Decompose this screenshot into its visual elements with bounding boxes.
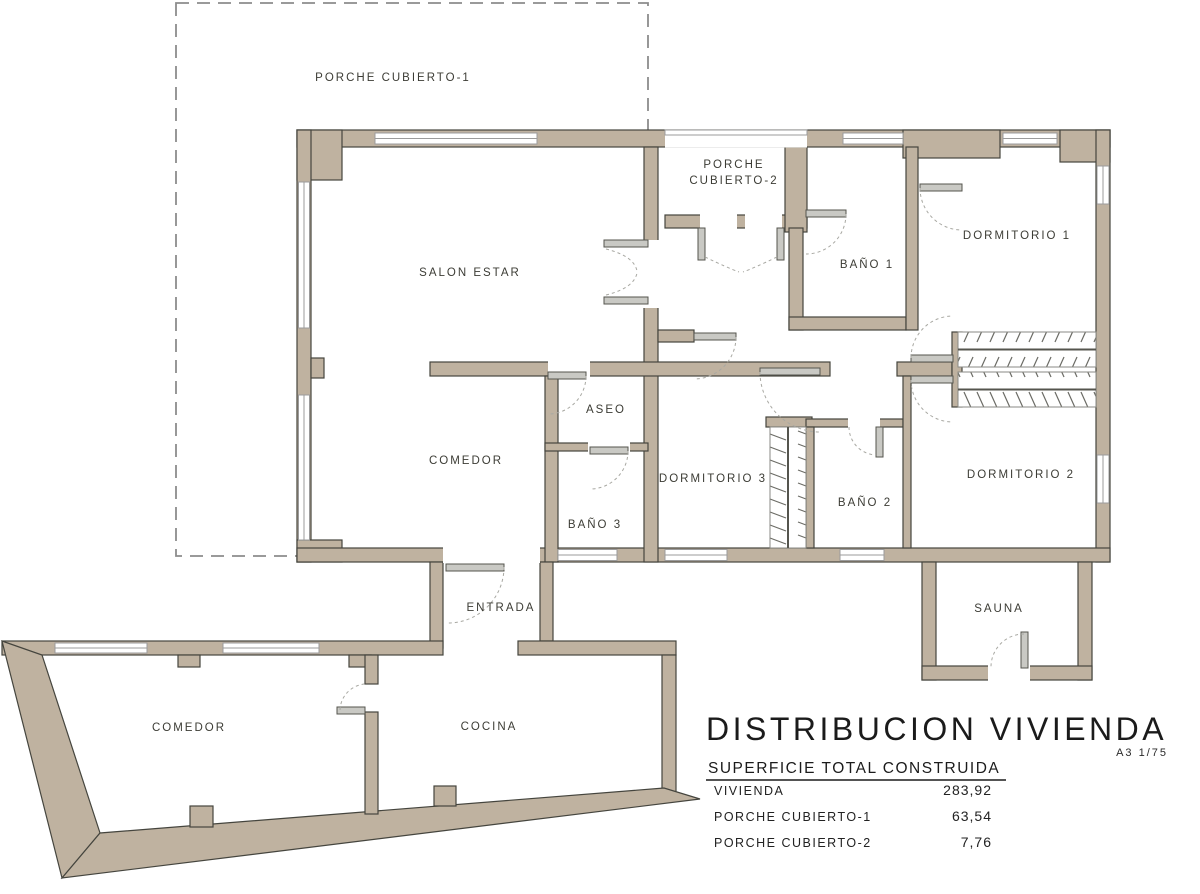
table-row-value: 283,92	[943, 782, 992, 798]
label-salon-estar: SALON ESTAR	[419, 267, 521, 279]
room-labels: PORCHE CUBIERTO-1 PORCHE CUBIERTO-2 SALO…	[152, 72, 1075, 734]
drawing-title: DISTRIBUCION VIVIENDA	[706, 711, 1167, 747]
label-porche-cubierto-2-line2: CUBIERTO-2	[689, 175, 778, 187]
label-sauna: SAUNA	[974, 603, 1024, 615]
table-row-value: 7,76	[961, 834, 992, 850]
label-dormitorio-3: DORMITORIO 3	[659, 473, 767, 485]
table-header: SUPERFICIE TOTAL CONSTRUIDA	[708, 760, 1000, 777]
label-bano-3: BAÑO 3	[568, 518, 622, 531]
label-comedor-inferior: COMEDOR	[152, 722, 226, 734]
porch1-dashed-outline	[176, 3, 648, 556]
table-row-label: PORCHE CUBIERTO-2	[714, 836, 872, 850]
table-row-value: 63,54	[952, 808, 992, 824]
sheet-scale-note: A3 1/75	[1116, 747, 1168, 759]
label-dormitorio-1: DORMITORIO 1	[963, 230, 1071, 242]
label-dormitorio-2: DORMITORIO 2	[967, 469, 1075, 481]
table-row-label: VIVIENDA	[714, 784, 784, 798]
wall-openings	[443, 134, 1030, 681]
label-bano-2: BAÑO 2	[838, 496, 892, 509]
table-row-label: PORCHE CUBIERTO-1	[714, 810, 872, 824]
label-aseo: ASEO	[586, 404, 626, 416]
label-bano-1: BAÑO 1	[840, 258, 894, 271]
label-porche-cubierto-1: PORCHE CUBIERTO-1	[315, 72, 471, 84]
label-porche-cubierto-2-line1: PORCHE	[703, 159, 764, 171]
floor-plan-canvas: PORCHE CUBIERTO-1 PORCHE CUBIERTO-2 SALO…	[0, 0, 1200, 894]
floor-plan-page: PORCHE CUBIERTO-1 PORCHE CUBIERTO-2 SALO…	[0, 0, 1200, 894]
porch2-open-edge	[665, 130, 807, 135]
label-comedor-superior: COMEDOR	[429, 455, 503, 467]
windows	[55, 133, 1109, 653]
label-cocina: COCINA	[461, 721, 518, 733]
title-block: DISTRIBUCION VIVIENDA A3 1/75 SUPERFICIE…	[706, 711, 1168, 850]
label-entrada: ENTRADA	[467, 602, 536, 614]
